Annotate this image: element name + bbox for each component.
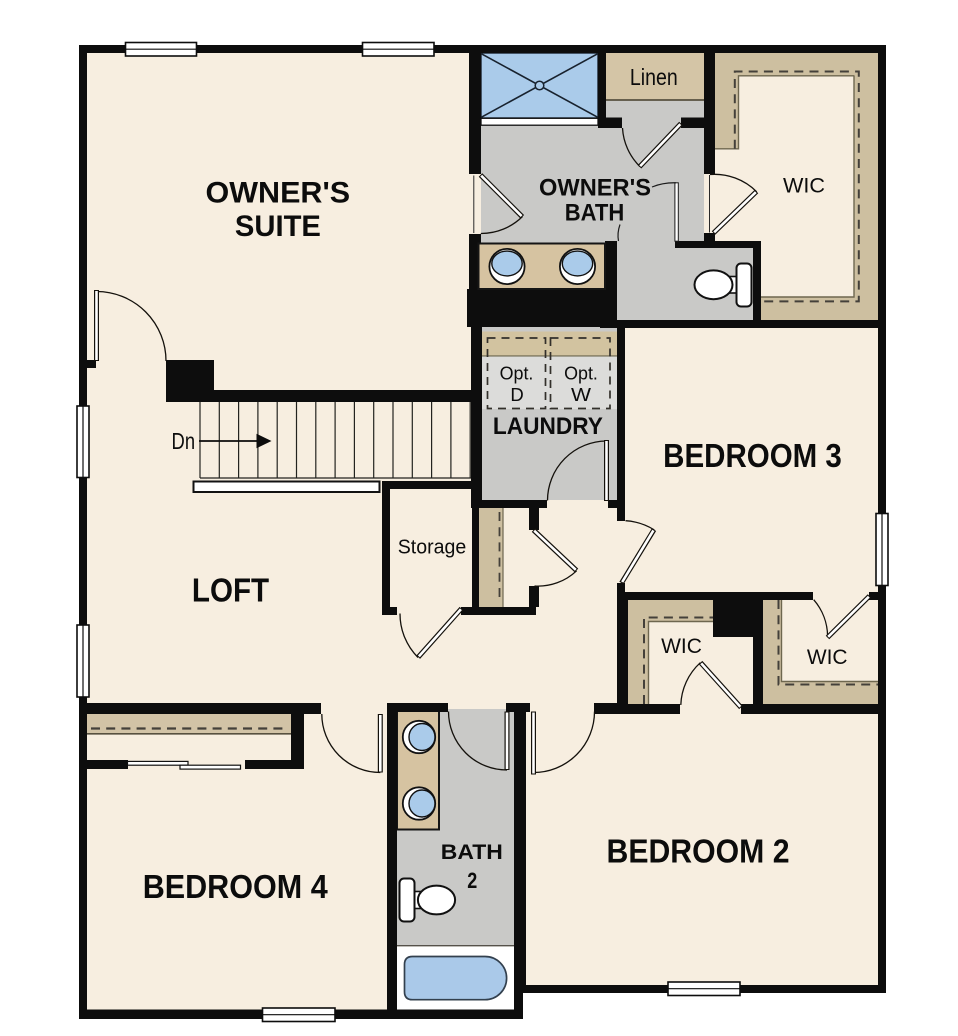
svg-text:W: W [571,384,592,405]
svg-text:Storage: Storage [398,537,467,559]
svg-text:LAUNDRY: LAUNDRY [493,413,603,440]
svg-text:BEDROOM 2: BEDROOM 2 [607,833,790,870]
svg-text:D: D [510,384,523,405]
svg-text:OWNER'S: OWNER'S [206,177,351,210]
svg-text:SUITE: SUITE [235,210,321,243]
svg-text:BEDROOM 3: BEDROOM 3 [663,437,842,474]
svg-text:2: 2 [467,868,477,893]
svg-text:WIC: WIC [783,174,825,198]
svg-text:LOFT: LOFT [192,572,269,609]
svg-text:WIC: WIC [661,634,702,658]
svg-text:Opt.: Opt. [564,363,598,384]
svg-text:Linen: Linen [630,64,678,90]
svg-text:Dn: Dn [172,428,196,454]
svg-text:BATH: BATH [565,199,625,226]
svg-text:WIC: WIC [807,645,848,669]
svg-text:BATH: BATH [441,841,503,864]
svg-text:BEDROOM 4: BEDROOM 4 [143,868,329,905]
svg-text:OWNER'S: OWNER'S [539,174,651,201]
svg-text:Opt.: Opt. [500,363,534,384]
